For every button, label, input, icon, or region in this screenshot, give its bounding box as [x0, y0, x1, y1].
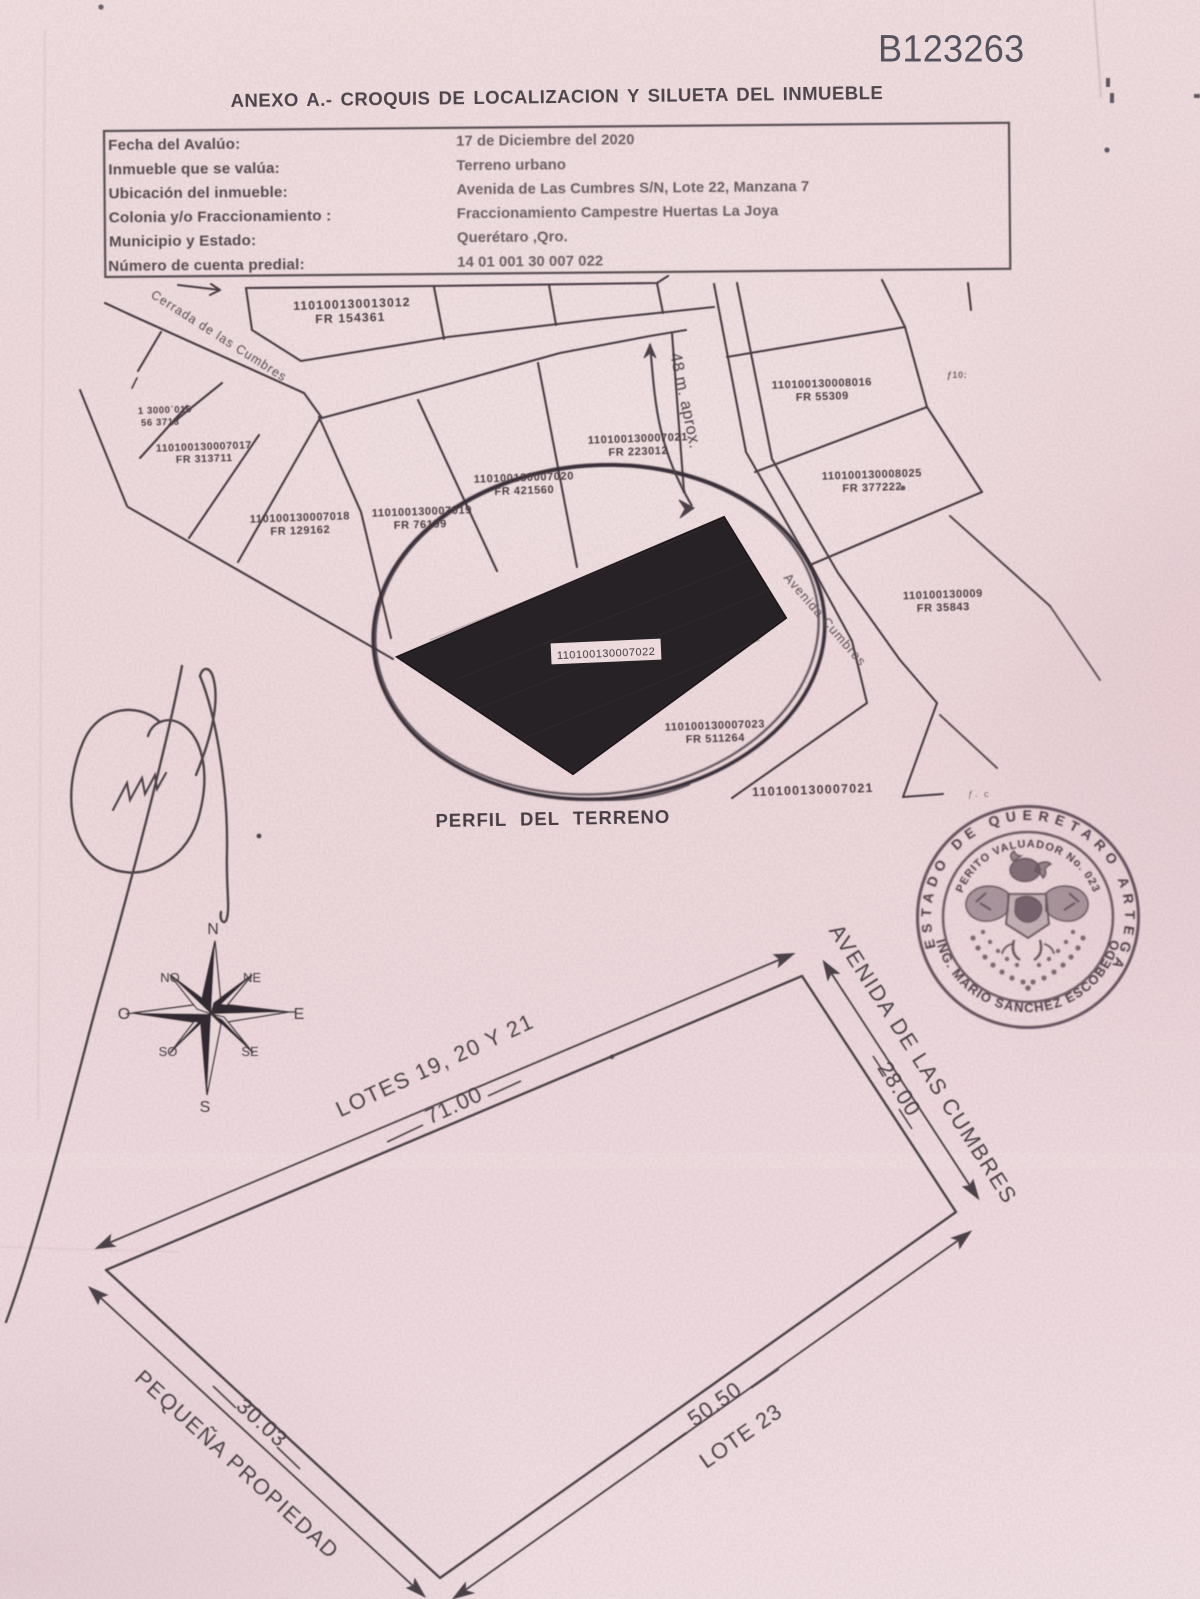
svg-text:NO: NO: [160, 970, 180, 985]
svg-text:FR 511264: FR 511264: [686, 732, 746, 746]
svg-text:PERFIL DEL TERRENO: PERFIL DEL TERRENO: [435, 806, 670, 831]
svg-text:FR 377222: FR 377222: [842, 481, 902, 495]
svg-text:S: S: [200, 1099, 211, 1116]
svg-text:FR 76199: FR 76199: [394, 518, 447, 532]
svg-text:Avenida de Las Cumbres S/N, Lo: Avenida de Las Cumbres S/N, Lote 22, Man…: [456, 179, 809, 198]
svg-text:FR 154361: FR 154361: [315, 310, 386, 326]
svg-text:FR 129162: FR 129162: [270, 524, 330, 538]
svg-text:1 3000´016: 1 3000´016: [138, 404, 192, 417]
svg-text:FR 35843: FR 35843: [917, 601, 970, 615]
svg-text:N: N: [207, 921, 219, 938]
svg-text:B123263: B123263: [878, 27, 1024, 70]
svg-text:Fraccionamiento Campestre Huer: Fraccionamiento Campestre Huertas La Joy…: [457, 203, 779, 222]
svg-text:Municipio y Estado:: Municipio y Estado:: [109, 232, 256, 250]
svg-text:Número de cuenta predial:: Número de cuenta predial:: [108, 256, 305, 275]
svg-text:17 de Diciembre del 2020: 17 de Diciembre del 2020: [456, 132, 635, 150]
svg-text:FR 313711: FR 313711: [176, 452, 233, 466]
svg-text:SO: SO: [159, 1044, 178, 1059]
svg-text:Inmueble que se valúa:: Inmueble que se valúa:: [108, 160, 280, 179]
svg-text:56 3713: 56 3713: [141, 416, 180, 428]
svg-text:FR 421560: FR 421560: [494, 484, 554, 498]
svg-text:Terreno urbano: Terreno urbano: [456, 157, 566, 174]
svg-text:O: O: [118, 1006, 130, 1023]
svg-text:Colonia y/o Fraccionamiento: Colonia y/o Fraccionamiento :: [109, 207, 332, 226]
svg-text:SE: SE: [241, 1044, 259, 1059]
svg-text:Ubicación del inmueble:: Ubicación del inmueble:: [108, 184, 287, 203]
svg-text:14 01 001 30 007 022: 14 01 001 30 007 022: [457, 253, 603, 270]
svg-text:FR 223012: FR 223012: [608, 445, 668, 459]
svg-text:NE: NE: [243, 970, 261, 985]
svg-text:E: E: [294, 1006, 305, 1023]
svg-text:ƒ. с: ƒ. с: [968, 789, 991, 799]
svg-text:ƒ10:: ƒ10:: [947, 370, 967, 380]
svg-text:FR 55309: FR 55309: [796, 390, 849, 404]
svg-text:Fecha del Avalúo:: Fecha del Avalúo:: [108, 136, 240, 154]
svg-text:Querétaro ,Qro.: Querétaro ,Qro.: [457, 229, 568, 246]
